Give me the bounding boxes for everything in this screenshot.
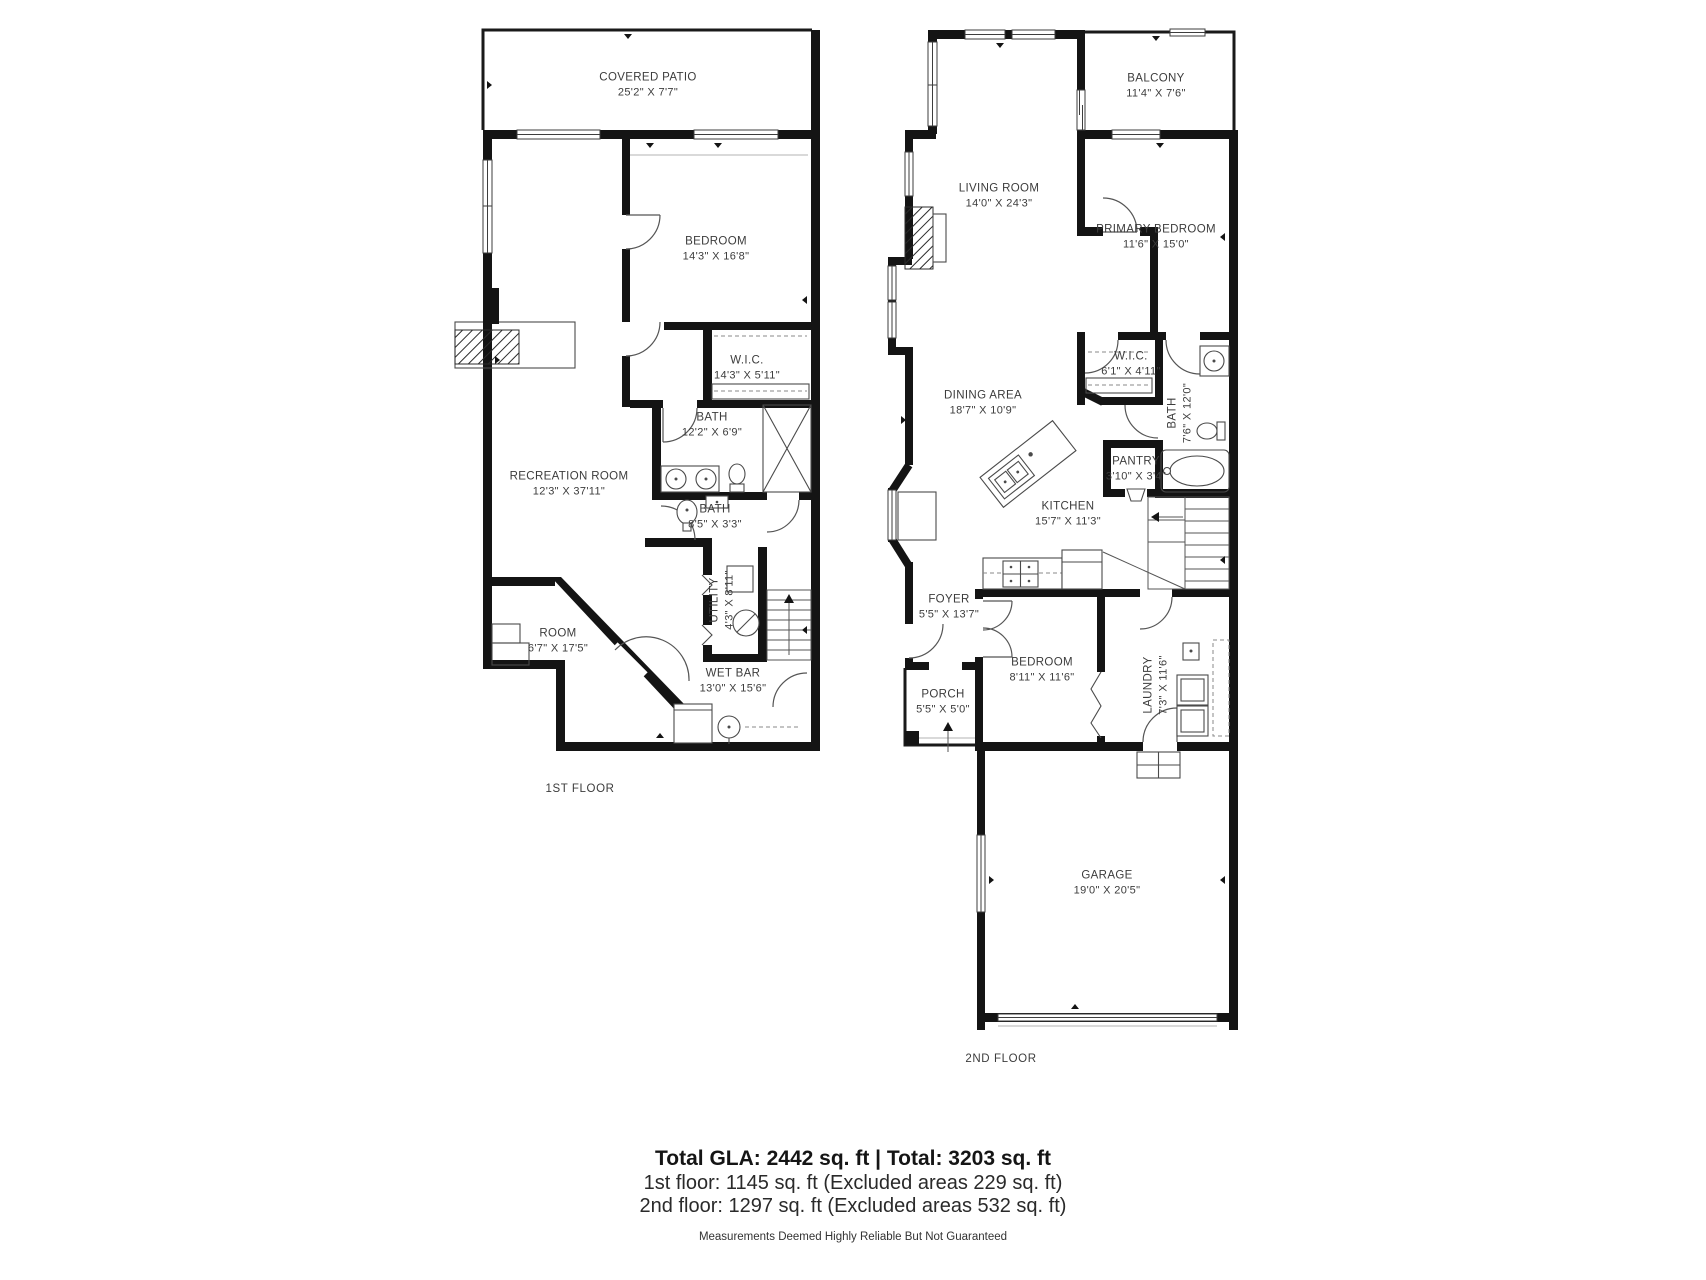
room-dims: 7'6" X 12'0" <box>1180 383 1194 443</box>
room-dims: 5'5" X 5'0" <box>916 702 970 716</box>
double-sink-icon <box>661 466 719 492</box>
room-name: BATH <box>688 503 742 518</box>
room-label-primary-bedroom: PRIMARY BEDROOM11'6" X 15'0" <box>1096 223 1216 252</box>
sliding-door <box>1077 90 1085 130</box>
window <box>905 152 913 196</box>
room-dims: 7'3" X 11'6" <box>1156 655 1170 714</box>
shower-icon <box>763 405 811 492</box>
window <box>1170 29 1205 36</box>
window <box>1112 130 1160 139</box>
stairs-first-floor <box>767 590 811 660</box>
room-label-porch: PORCH5'5" X 5'0" <box>916 688 970 717</box>
room-label-recreation-room: RECREATION ROOM12'3" X 37'11" <box>510 470 629 499</box>
room-dims: 14'0" X 24'3" <box>959 196 1040 210</box>
room-dims: 15'7" X 11'3" <box>1035 514 1101 528</box>
room-label-garage: GARAGE19'0" X 20'5" <box>1074 869 1141 898</box>
room-label-w-i-c: W.I.C.14'3" X 5'11" <box>714 354 780 383</box>
room-name: W.I.C. <box>1101 350 1160 365</box>
room-label-covered-patio: COVERED PATIO25'2" X 7'7" <box>599 71 696 100</box>
room-label-bedroom: BEDROOM8'11" X 11'6" <box>1009 656 1074 685</box>
fireplace-icon <box>455 288 575 368</box>
second-floor-plan <box>888 29 1238 1030</box>
disclaimer-line: Measurements Deemed Highly Reliable But … <box>0 1231 1706 1243</box>
window <box>977 835 985 912</box>
floor-label-first: 1ST FLOOR <box>545 783 614 795</box>
room-label-balcony: BALCONY11'4" X 7'6" <box>1126 72 1185 101</box>
room-dims: 12'3" X 37'11" <box>510 484 629 498</box>
room-name: LAUNDRY <box>1142 655 1157 714</box>
room-name: UTILITY <box>708 570 723 629</box>
room-label-room: ROOM6'7" X 17'5" <box>528 627 588 656</box>
room-name: GARAGE <box>1074 869 1141 884</box>
room-name: WET BAR <box>700 667 767 682</box>
floor-label-second: 2ND FLOOR <box>965 1053 1036 1065</box>
room-dims: 5'5" X 13'7" <box>919 607 979 621</box>
room-name: BEDROOM <box>683 235 750 250</box>
bar-sink-icon <box>718 716 800 744</box>
room-label-bath: BATH8'5" X 3'3" <box>688 503 742 532</box>
room-name: BATH <box>682 411 742 426</box>
room-dims: 25'2" X 7'7" <box>599 85 696 99</box>
floor-plan-canvas <box>0 0 1706 1280</box>
room-dims: 14'3" X 5'11" <box>714 368 780 382</box>
room-label-bath: BATH12'2" X 6'9" <box>682 411 742 440</box>
room-dims: 6'1" X 4'11" <box>1101 364 1160 378</box>
bathtub-icon <box>1161 450 1229 492</box>
room-name: PORCH <box>916 688 970 703</box>
room-name: COVERED PATIO <box>599 71 696 86</box>
window <box>965 30 1005 39</box>
room-dims: 8'11" X 11'6" <box>1009 670 1074 684</box>
room-label-kitchen: KITCHEN15'7" X 11'3" <box>1035 500 1101 529</box>
bay-window <box>888 490 896 540</box>
room-dims: 6'7" X 17'5" <box>528 641 588 655</box>
water-heater-icon <box>733 610 759 636</box>
room-name: PANTRY <box>1106 455 1166 470</box>
window-seat <box>898 492 936 540</box>
room-dims: 11'6" X 15'0" <box>1096 237 1216 251</box>
room-name: LIVING ROOM <box>959 182 1040 197</box>
window <box>694 130 778 139</box>
window <box>1012 30 1055 39</box>
room-name: W.I.C. <box>714 354 780 369</box>
laundry-sink-icon <box>1183 643 1199 660</box>
wet-bar-cabinet <box>674 704 712 743</box>
room-label-foyer: FOYER5'5" X 13'7" <box>919 593 979 622</box>
window-seat <box>492 624 529 665</box>
room-name: BATH <box>1166 383 1181 443</box>
room-dims: 11'4" X 7'6" <box>1126 86 1185 100</box>
fridge-icon <box>1062 550 1102 589</box>
floor-plan-page: COVERED PATIO25'2" X 7'7"BEDROOM14'3" X … <box>0 0 1706 1280</box>
garage-door <box>998 1014 1217 1021</box>
room-label-wet-bar: WET BAR13'0" X 15'6" <box>700 667 767 696</box>
window <box>928 42 937 126</box>
entry-arrow <box>943 722 953 752</box>
summary-block: Total GLA: 2442 sq. ft | Total: 3203 sq.… <box>0 1146 1706 1243</box>
room-dims: 18'7" X 10'9" <box>944 403 1022 417</box>
room-name: ROOM <box>528 627 588 642</box>
room-dims: 4'3" X 8'11" <box>722 570 736 629</box>
room-name: BEDROOM <box>1009 656 1074 671</box>
room-label-bath: BATH7'6" X 12'0" <box>1166 383 1195 443</box>
room-name: FOYER <box>919 593 979 608</box>
kitchen-island <box>980 421 1076 508</box>
room-name: PRIMARY BEDROOM <box>1096 223 1216 238</box>
room-label-laundry: LAUNDRY7'3" X 11'6" <box>1142 655 1171 714</box>
second-floor-area-line: 2nd floor: 1297 sq. ft (Excluded areas 5… <box>0 1195 1706 1218</box>
room-dims: 19'0" X 20'5" <box>1074 883 1141 897</box>
first-floor-area-line: 1st floor: 1145 sq. ft (Excluded areas 2… <box>0 1172 1706 1195</box>
room-name: BALCONY <box>1126 72 1185 87</box>
room-name: KITCHEN <box>1035 500 1101 515</box>
first-floor-plan <box>455 30 820 751</box>
window <box>517 130 600 139</box>
fireplace-icon <box>905 207 946 269</box>
window <box>483 160 492 253</box>
dryer-icon <box>1177 706 1208 736</box>
window <box>888 266 896 300</box>
room-name: RECREATION ROOM <box>510 470 629 485</box>
stairs-second-floor <box>1103 497 1229 589</box>
sink-icon <box>1200 346 1229 376</box>
room-label-pantry: PANTRY3'10" X 3'4" <box>1106 455 1166 484</box>
room-label-utility: UTILITY4'3" X 8'11" <box>708 570 737 629</box>
stove-icon <box>1003 561 1038 587</box>
room-dims: 13'0" X 15'6" <box>700 681 767 695</box>
room-dims: 14'3" X 16'8" <box>683 249 750 263</box>
room-label-bedroom: BEDROOM14'3" X 16'8" <box>683 235 750 264</box>
room-label-living-room: LIVING ROOM14'0" X 24'3" <box>959 182 1040 211</box>
windows-first-floor <box>483 130 808 253</box>
room-label-dining-area: DINING AREA18'7" X 10'9" <box>944 389 1022 418</box>
room-label-w-i-c: W.I.C.6'1" X 4'11" <box>1101 350 1160 379</box>
room-dims: 3'10" X 3'4" <box>1106 469 1166 483</box>
garage-grid-window <box>1137 752 1180 778</box>
window <box>888 302 896 338</box>
toilet-icon <box>729 464 745 492</box>
total-gla-line: Total GLA: 2442 sq. ft | Total: 3203 sq.… <box>0 1146 1706 1172</box>
room-name: DINING AREA <box>944 389 1022 404</box>
toilet-icon <box>1197 422 1225 440</box>
room-dims: 12'2" X 6'9" <box>682 425 742 439</box>
washer-icon <box>1177 675 1208 705</box>
room-dims: 8'5" X 3'3" <box>688 517 742 531</box>
